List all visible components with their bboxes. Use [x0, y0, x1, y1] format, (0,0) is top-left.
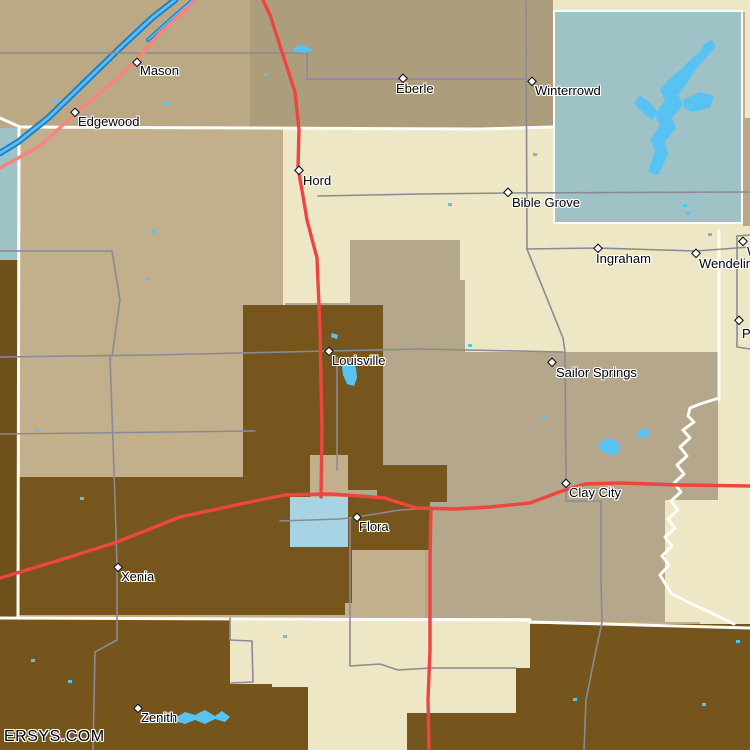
town-label-wendelin: Wendelin: [699, 257, 750, 270]
town-label-xenia: Xenia: [121, 570, 154, 583]
town-label-p: P: [742, 327, 750, 340]
town-label-louisville: Louisville: [332, 354, 385, 367]
town-label-sailor-springs: Sailor Springs: [556, 366, 637, 379]
town-label-zenith: Zenith: [141, 711, 177, 724]
town-label-bible-grove: Bible Grove: [512, 196, 580, 209]
town-label-edgewood: Edgewood: [78, 115, 139, 128]
town-label-eberle: Eberle: [396, 82, 434, 95]
town-label-hord: Hord: [303, 174, 331, 187]
town-label-mason: Mason: [140, 64, 179, 77]
watermark: ERSYS.COM: [4, 729, 105, 745]
town-label-flora: Flora: [359, 520, 389, 533]
town-label-ingraham: Ingraham: [596, 252, 651, 265]
town-label-clay-city: Clay City: [569, 486, 621, 499]
town-marker-p: [734, 315, 743, 324]
town-label-winterrowd: Winterrowd: [535, 84, 601, 97]
town-labels-layer: MasonEdgewoodEberleWinterrowdHordBible G…: [0, 0, 750, 750]
map-canvas: MasonEdgewoodEberleWinterrowdHordBible G…: [0, 0, 750, 750]
